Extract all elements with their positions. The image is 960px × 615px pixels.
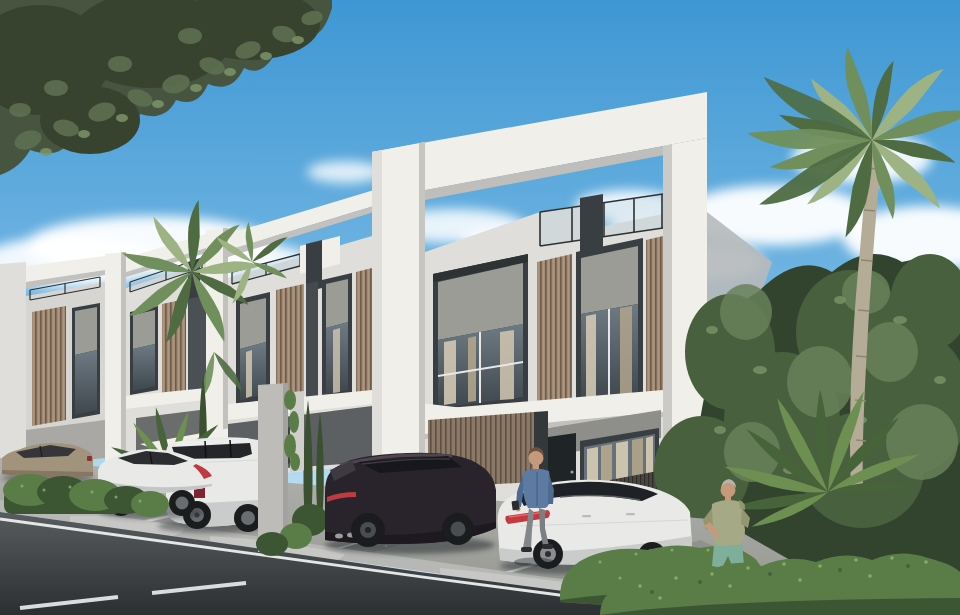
window <box>322 273 352 398</box>
upper-window-right <box>576 238 643 406</box>
rendering-canvas <box>0 0 960 615</box>
roof-access-door <box>580 194 603 254</box>
louvre-panel-edge <box>646 236 663 402</box>
window <box>130 306 158 395</box>
window <box>72 303 100 419</box>
louvre-panel <box>32 306 66 426</box>
dark-suv <box>325 453 496 547</box>
architectural-rendering <box>0 0 960 615</box>
louvre-panel-mid <box>537 254 572 414</box>
upper-window-left <box>433 254 528 414</box>
